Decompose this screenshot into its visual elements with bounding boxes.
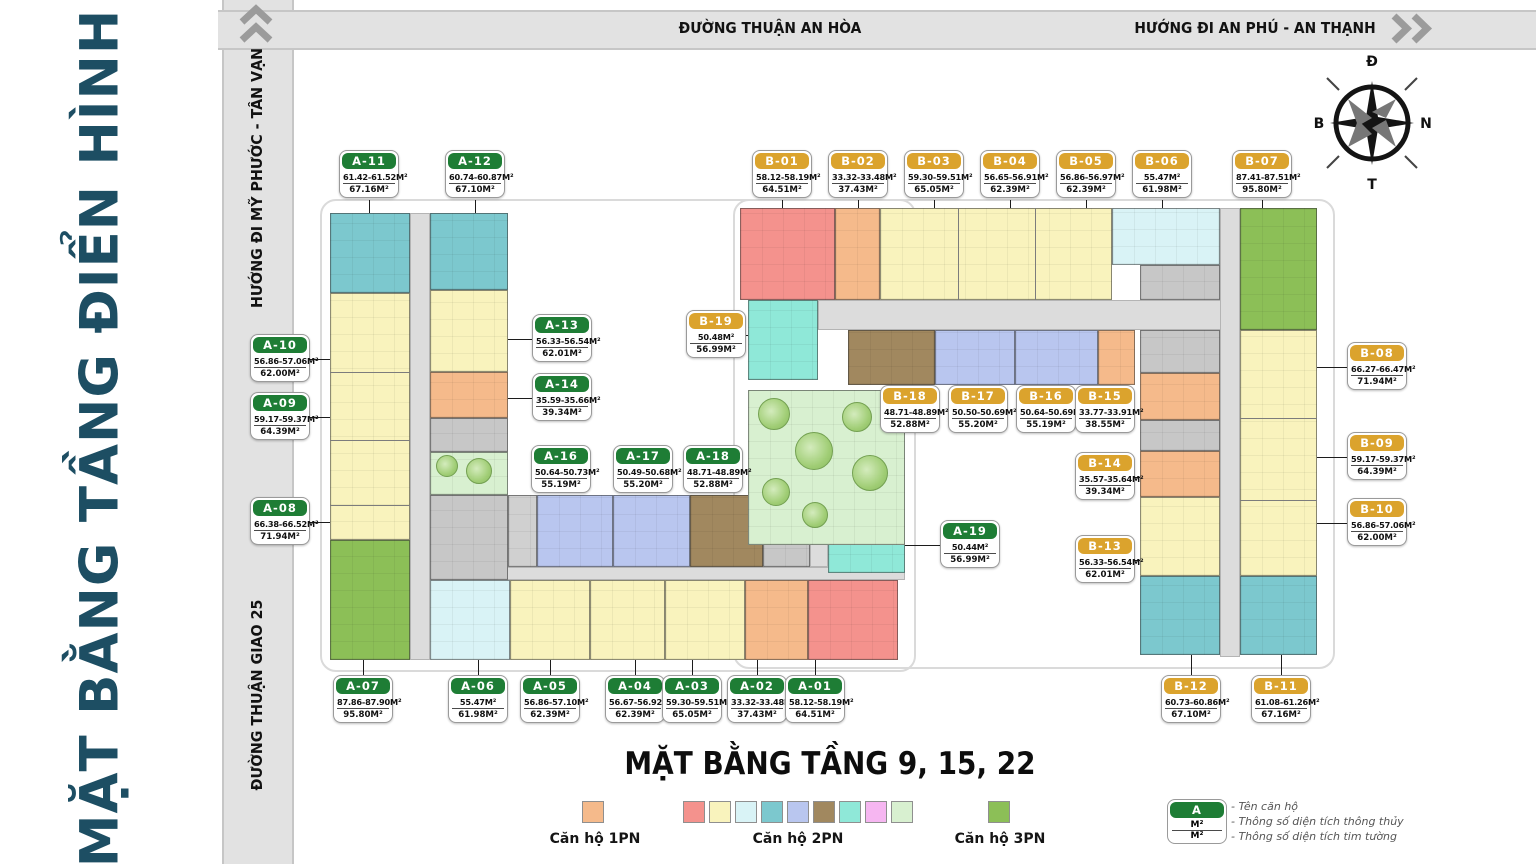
- legend-swatch: [735, 801, 757, 823]
- unit-area-gross: 52.88M²: [684, 479, 742, 490]
- legend-note-net: - Thông số diện tích thông thủy: [1231, 814, 1404, 829]
- unit-area-net: 87.41-87.51M²: [1236, 171, 1288, 184]
- unit-area-net: 60.74-60.87M²: [449, 171, 501, 184]
- legend-key-net: M²: [1172, 820, 1222, 831]
- legend-swatch: [839, 801, 861, 823]
- unit-area-net: 59.30-59.51M²: [666, 696, 718, 709]
- unit-area-gross: 37.43M²: [829, 184, 887, 195]
- leader-line: [692, 660, 693, 675]
- unit-label-A-16: A-1650.64-50.73M²55.19M²: [531, 445, 591, 493]
- unit-label-A-12: A-1260.74-60.87M²67.10M²: [445, 150, 505, 198]
- unit-name: B-11: [1254, 678, 1308, 694]
- unit-name: B-06: [1135, 153, 1189, 169]
- unit-area-net: 56.33-56.54M²: [536, 335, 588, 348]
- corridor-b-vertical: [1220, 208, 1240, 657]
- unit-area-net: 66.27-66.47M²: [1351, 363, 1403, 376]
- leader-line: [782, 200, 783, 208]
- unit-label-A-08: A-0866.38-66.52M²71.94M²: [250, 497, 310, 545]
- unit-area-net: 35.57-35.64M²: [1079, 473, 1131, 486]
- plan-unit-a13: [430, 290, 508, 372]
- unit-area-gross: 62.01M²: [1076, 569, 1134, 580]
- unit-area-net: 56.86-56.97M²: [1060, 171, 1112, 184]
- unit-name: B-01: [755, 153, 809, 169]
- unit-area-gross: 67.16M²: [1252, 709, 1310, 720]
- legend-swatch: [709, 801, 731, 823]
- unit-area-net: 59.30-59.51M²: [908, 171, 960, 184]
- road-label-top: ĐƯỜNG THUẬN AN HÒA: [679, 19, 862, 37]
- unit-area-net: 61.08-61.26M²: [1255, 696, 1307, 709]
- unit-label-A-02: A-0233.32-33.48M²37.43M²: [727, 675, 787, 723]
- corridor-a-vertical: [410, 213, 430, 660]
- leader-line: [478, 660, 479, 675]
- plan-units-b08-b09-b10: [1240, 330, 1317, 576]
- corridor-b-horizontal: [818, 300, 1240, 330]
- plan-units-b03-b04-b05: [880, 208, 1112, 300]
- leader-line: [905, 545, 940, 546]
- unit-name: A-04: [608, 678, 662, 694]
- leader-line: [363, 660, 364, 675]
- unit-name: B-14: [1078, 455, 1132, 471]
- plan-unit-b13: [1140, 497, 1220, 576]
- plan-unit-b02: [835, 208, 880, 300]
- unit-area-net: 48.71-48.89M²: [884, 406, 936, 419]
- unit-name: B-13: [1078, 538, 1132, 554]
- unit-name: B-05: [1059, 153, 1113, 169]
- unit-name: B-08: [1350, 345, 1404, 361]
- unit-area-net: 61.42-61.52M²: [343, 171, 395, 184]
- plan-unit-a06: [430, 580, 510, 660]
- unit-name: B-09: [1350, 435, 1404, 451]
- unit-name: B-07: [1235, 153, 1289, 169]
- unit-name: B-18: [883, 388, 937, 404]
- unit-label-B-12: B-1260.73-60.86M²67.10M²: [1161, 675, 1221, 723]
- unit-name: A-17: [616, 448, 670, 464]
- unit-label-A-10: A-1056.86-57.06M²62.00M²: [250, 334, 310, 382]
- unit-area-net: 56.67-56.92M²: [609, 696, 661, 709]
- unit-label-A-09: A-0959.17-59.37M²64.39M²: [250, 392, 310, 440]
- plan-unit-a01: [808, 580, 898, 660]
- unit-area-net: 56.86-57.06M²: [254, 355, 306, 368]
- unit-area-net: 66.38-66.52M²: [254, 518, 306, 531]
- unit-label-A-13: A-1356.33-56.54M²62.01M²: [532, 314, 592, 362]
- plan-unit-a07: [330, 540, 410, 660]
- unit-name: A-12: [448, 153, 502, 169]
- unit-label-B-06: B-0655.47M²61.98M²: [1132, 150, 1192, 198]
- unit-name: A-19: [943, 523, 997, 539]
- floor-caption: MẶT BẰNG TẦNG 9, 15, 22: [624, 746, 1035, 782]
- unit-label-B-09: B-0959.17-59.37M²64.39M²: [1347, 432, 1407, 480]
- unit-area-gross: 67.16M²: [340, 184, 398, 195]
- unit-area-gross: 67.10M²: [446, 184, 504, 195]
- unit-area-net: 55.47M²: [1136, 171, 1188, 184]
- leader-line: [858, 200, 859, 208]
- unit-area-net: 58.12-58.19M²: [789, 696, 841, 709]
- unit-label-B-05: B-0556.86-56.97M²62.39M²: [1056, 150, 1116, 198]
- leader-line: [1317, 457, 1347, 458]
- leader-line: [1191, 655, 1192, 675]
- unit-label-A-01: A-0158.12-58.19M²64.51M²: [785, 675, 845, 723]
- leader-line: [1317, 367, 1347, 368]
- unit-area-gross: 71.94M²: [251, 531, 309, 542]
- unit-area-gross: 95.80M²: [334, 709, 392, 720]
- unit-name: A-13: [535, 317, 589, 333]
- unit-area-gross: 64.39M²: [251, 426, 309, 437]
- unit-area-gross: 61.98M²: [449, 709, 507, 720]
- plan-unit-b01: [740, 208, 835, 300]
- plan-unit-b06: [1112, 208, 1220, 265]
- legend-swatch: [865, 801, 887, 823]
- unit-area-net: 50.50-50.69M²: [952, 406, 1004, 419]
- unit-area-net: 48.71-48.89M²: [687, 466, 739, 479]
- unit-area-gross: 71.94M²: [1348, 376, 1406, 387]
- unit-name: A-08: [253, 500, 307, 516]
- plan-unit-b15: [1098, 330, 1135, 385]
- unit-label-B-15: B-1533.77-33.91M²38.55M²: [1075, 385, 1135, 433]
- plan-unit-a14: [430, 372, 508, 418]
- plan-unit-a11: [330, 213, 410, 293]
- unit-area-net: 56.33-56.54M²: [1079, 556, 1131, 569]
- unit-name: B-16: [1019, 388, 1073, 404]
- plan-unit-b18: [848, 330, 935, 385]
- unit-area-net: 59.17-59.37M²: [1351, 453, 1403, 466]
- unit-label-B-10: B-1056.86-57.06M²62.00M²: [1347, 498, 1407, 546]
- unit-area-net: 35.59-35.66M²: [536, 394, 588, 407]
- unit-area-net: 56.86-57.06M²: [1351, 519, 1403, 532]
- unit-area-gross: 55.19M²: [1017, 419, 1075, 430]
- leader-line: [550, 660, 551, 675]
- unit-name: A-18: [686, 448, 740, 464]
- unit-area-gross: 62.39M²: [1057, 184, 1115, 195]
- unit-label-B-16: B-1650.64-50.69M²55.19M²: [1016, 385, 1076, 433]
- unit-area-net: 55.47M²: [452, 696, 504, 709]
- leader-line: [815, 660, 816, 675]
- plan-unit-a12: [430, 213, 508, 290]
- unit-name: B-03: [907, 153, 961, 169]
- unit-label-B-11: B-1161.08-61.26M²67.16M²: [1251, 675, 1311, 723]
- unit-label-B-13: B-1356.33-56.54M²62.01M²: [1075, 535, 1135, 583]
- unit-label-A-14: A-1435.59-35.66M²39.34M²: [532, 373, 592, 421]
- plan-unit-a17: [613, 495, 690, 567]
- unit-label-A-11: A-1161.42-61.52M²67.16M²: [339, 150, 399, 198]
- unit-name: B-10: [1350, 501, 1404, 517]
- unit-area-gross: 37.43M²: [728, 709, 786, 720]
- unit-area-net: 59.17-59.37M²: [254, 413, 306, 426]
- unit-label-A-17: A-1750.49-50.68M²55.20M²: [613, 445, 673, 493]
- page-title: MẶT BẰNG TẦNG ĐIỂN HÌNH: [70, 9, 131, 864]
- unit-label-A-04: A-0456.67-56.92M²62.39M²: [605, 675, 665, 723]
- leader-line: [1010, 200, 1011, 208]
- unit-area-gross: 55.19M²: [532, 479, 590, 490]
- unit-label-B-02: B-0233.32-33.48M²37.43M²: [828, 150, 888, 198]
- unit-label-B-18: B-1848.71-48.89M²52.88M²: [880, 385, 940, 433]
- legend-label-3pn: Căn hộ 3PN: [955, 831, 1046, 847]
- leader-line: [508, 339, 532, 340]
- unit-area-net: 58.12-58.19M²: [756, 171, 808, 184]
- unit-area-net: 56.86-57.10M²: [524, 696, 576, 709]
- unit-area-gross: 56.99M²: [941, 554, 999, 565]
- unit-name: B-17: [951, 388, 1005, 404]
- unit-area-net: 33.77-33.91M²: [1079, 406, 1131, 419]
- leader-line: [475, 200, 476, 213]
- unit-label-B-03: B-0359.30-59.51M²65.05M²: [904, 150, 964, 198]
- unit-area-gross: 62.39M²: [521, 709, 579, 720]
- unit-label-B-14: B-1435.57-35.64M²39.34M²: [1075, 452, 1135, 500]
- legend-note-name: - Tên căn hộ: [1231, 799, 1404, 814]
- unit-area-gross: 39.34M²: [1076, 486, 1134, 497]
- unit-area-gross: 62.01M²: [533, 348, 591, 359]
- unit-area-gross: 55.20M²: [949, 419, 1007, 430]
- unit-label-A-06: A-0655.47M²61.98M²: [448, 675, 508, 723]
- leader-line: [1162, 200, 1163, 208]
- unit-label-B-04: B-0456.65-56.91M²62.39M²: [980, 150, 1040, 198]
- unit-area-net: 50.64-50.73M²: [535, 466, 587, 479]
- legend-swatch: [683, 801, 705, 823]
- plan-unit-a02: [745, 580, 808, 660]
- unit-area-gross: 64.51M²: [753, 184, 811, 195]
- unit-area-gross: 67.10M²: [1162, 709, 1220, 720]
- unit-area-gross: 62.39M²: [981, 184, 1039, 195]
- unit-name: A-07: [336, 678, 390, 694]
- plan-unit-b19: [748, 300, 818, 380]
- legend-label-1pn: Căn hộ 1PN: [550, 831, 641, 847]
- unit-name: A-05: [523, 678, 577, 694]
- unit-name: A-14: [535, 376, 589, 392]
- legend-swatch: [988, 801, 1010, 823]
- unit-name: A-01: [788, 678, 842, 694]
- legend-swatches-3pn: [988, 801, 1010, 823]
- compass-east: Đ: [1366, 54, 1378, 70]
- legend-key-notes: - Tên căn hộ - Thông số diện tích thông …: [1231, 799, 1404, 844]
- plan-unit-b15-ext: [1140, 373, 1220, 420]
- unit-name: A-02: [730, 678, 784, 694]
- unit-label-A-05: A-0556.86-57.10M²62.39M²: [520, 675, 580, 723]
- leader-line: [934, 200, 935, 208]
- unit-area-gross: 95.80M²: [1233, 184, 1291, 195]
- road-label-left-lower: ĐƯỜNG THUẬN GIAO 25: [248, 600, 266, 791]
- compass-south: N: [1420, 116, 1432, 132]
- leader-line: [508, 398, 532, 399]
- unit-area-gross: 62.00M²: [1348, 532, 1406, 543]
- floor-plan-page: ĐƯỜNG THUẬN AN HÒA HƯỚNG ĐI AN PHÚ - AN …: [0, 0, 1536, 864]
- unit-area-gross: 39.34M²: [533, 407, 591, 418]
- legend-swatch: [813, 801, 835, 823]
- unit-label-A-07: A-0787.86-87.90M²95.80M²: [333, 675, 393, 723]
- plan-service-b: [1140, 330, 1220, 373]
- plan-unit-a04: [590, 580, 665, 660]
- unit-name: A-06: [451, 678, 505, 694]
- unit-label-B-01: B-0158.12-58.19M²64.51M²: [752, 150, 812, 198]
- unit-area-net: 50.48M²: [690, 331, 742, 344]
- plan-units-a10-a09-a08: [330, 293, 410, 540]
- legend-key-box: A M² M²: [1167, 799, 1227, 844]
- unit-label-B-19: B-1950.48M²56.99M²: [686, 310, 746, 358]
- unit-label-A-19: A-1950.44M²56.99M²: [940, 520, 1000, 568]
- plan-service-a: [508, 495, 537, 567]
- leader-line: [1281, 655, 1282, 675]
- leader-line: [369, 200, 370, 213]
- unit-area-net: 50.64-50.69M²: [1020, 406, 1072, 419]
- plan-elevators-b: [1140, 265, 1220, 300]
- legend-swatches-1pn: [582, 801, 604, 823]
- unit-area-gross: 65.05M²: [905, 184, 963, 195]
- unit-label-B-17: B-1750.50-50.69M²55.20M²: [948, 385, 1008, 433]
- legend-note-gross: - Thông số diện tích tim tường: [1231, 829, 1404, 844]
- unit-area-net: 50.49-50.68M²: [617, 466, 669, 479]
- road-label-top-right: HƯỚNG ĐI AN PHÚ - AN THẠNH: [1134, 19, 1375, 37]
- unit-area-net: 33.32-33.48M²: [731, 696, 783, 709]
- arrow-up-icon: [239, 4, 273, 44]
- leader-line: [757, 660, 758, 675]
- unit-name: B-12: [1164, 678, 1218, 694]
- legend-swatch: [582, 801, 604, 823]
- unit-label-B-07: B-0787.41-87.51M²95.80M²: [1232, 150, 1292, 198]
- leader-line: [1086, 200, 1087, 208]
- legend-swatch: [891, 801, 913, 823]
- unit-area-gross: 65.05M²: [663, 709, 721, 720]
- leader-line: [1317, 523, 1347, 524]
- unit-name: A-11: [342, 153, 396, 169]
- unit-area-net: 56.65-56.91M²: [984, 171, 1036, 184]
- plan-unit-b17: [935, 330, 1015, 385]
- legend-swatch: [761, 801, 783, 823]
- unit-area-gross: 52.88M²: [881, 419, 939, 430]
- legend-key-name: A: [1170, 802, 1224, 818]
- unit-area-net: 33.32-33.48M²: [832, 171, 884, 184]
- plan-unit-a16: [537, 495, 613, 567]
- leader-line: [1262, 200, 1263, 208]
- plan-stairs-a: [430, 418, 508, 452]
- compass-icon: Đ B N T: [1305, 48, 1440, 193]
- legend-key-gross: M²: [1168, 831, 1226, 841]
- unit-name: B-19: [689, 313, 743, 329]
- unit-area-net: 60.73-60.86M²: [1165, 696, 1217, 709]
- plan-stairs-b: [1140, 420, 1220, 451]
- unit-area-gross: 55.20M²: [614, 479, 672, 490]
- unit-area-gross: 56.99M²: [687, 344, 745, 355]
- unit-label-B-08: B-0866.27-66.47M²71.94M²: [1347, 342, 1407, 390]
- legend-label-2pn: Căn hộ 2PN: [753, 831, 844, 847]
- unit-name: A-16: [534, 448, 588, 464]
- plan-unit-b11: [1240, 576, 1317, 655]
- legend-swatches-2pn: [683, 801, 913, 823]
- compass-north: B: [1314, 116, 1325, 132]
- plan-unit-b16: [1015, 330, 1098, 385]
- unit-area-gross: 62.00M²: [251, 368, 309, 379]
- unit-name: B-04: [983, 153, 1037, 169]
- legend-swatch: [787, 801, 809, 823]
- plan-elevators-a: [430, 495, 508, 580]
- arrow-right-icon: [1390, 13, 1436, 44]
- plan-unit-b14: [1140, 451, 1220, 497]
- unit-area-gross: 64.51M²: [786, 709, 844, 720]
- unit-area-net: 87.86-87.90M²: [337, 696, 389, 709]
- unit-area-net: 50.44M²: [944, 541, 996, 554]
- plan-unit-a03: [665, 580, 745, 660]
- unit-label-A-18: A-1848.71-48.89M²52.88M²: [683, 445, 743, 493]
- unit-name: A-10: [253, 337, 307, 353]
- unit-name: A-09: [253, 395, 307, 411]
- unit-area-gross: 38.55M²: [1076, 419, 1134, 430]
- plan-unit-b12: [1140, 576, 1220, 655]
- unit-area-gross: 61.98M²: [1133, 184, 1191, 195]
- unit-area-gross: 64.39M²: [1348, 466, 1406, 477]
- unit-area-gross: 62.39M²: [606, 709, 664, 720]
- unit-name: B-02: [831, 153, 885, 169]
- leader-line: [635, 660, 636, 675]
- unit-label-A-03: A-0359.30-59.51M²65.05M²: [662, 675, 722, 723]
- plan-unit-a05: [510, 580, 590, 660]
- plan-unit-b07: [1240, 208, 1317, 330]
- road-label-left-upper: HƯỚNG ĐI MỸ PHƯỚC - TÂN VẠN: [248, 48, 266, 308]
- unit-name: A-03: [665, 678, 719, 694]
- unit-name: B-15: [1078, 388, 1132, 404]
- compass-west: T: [1367, 177, 1377, 193]
